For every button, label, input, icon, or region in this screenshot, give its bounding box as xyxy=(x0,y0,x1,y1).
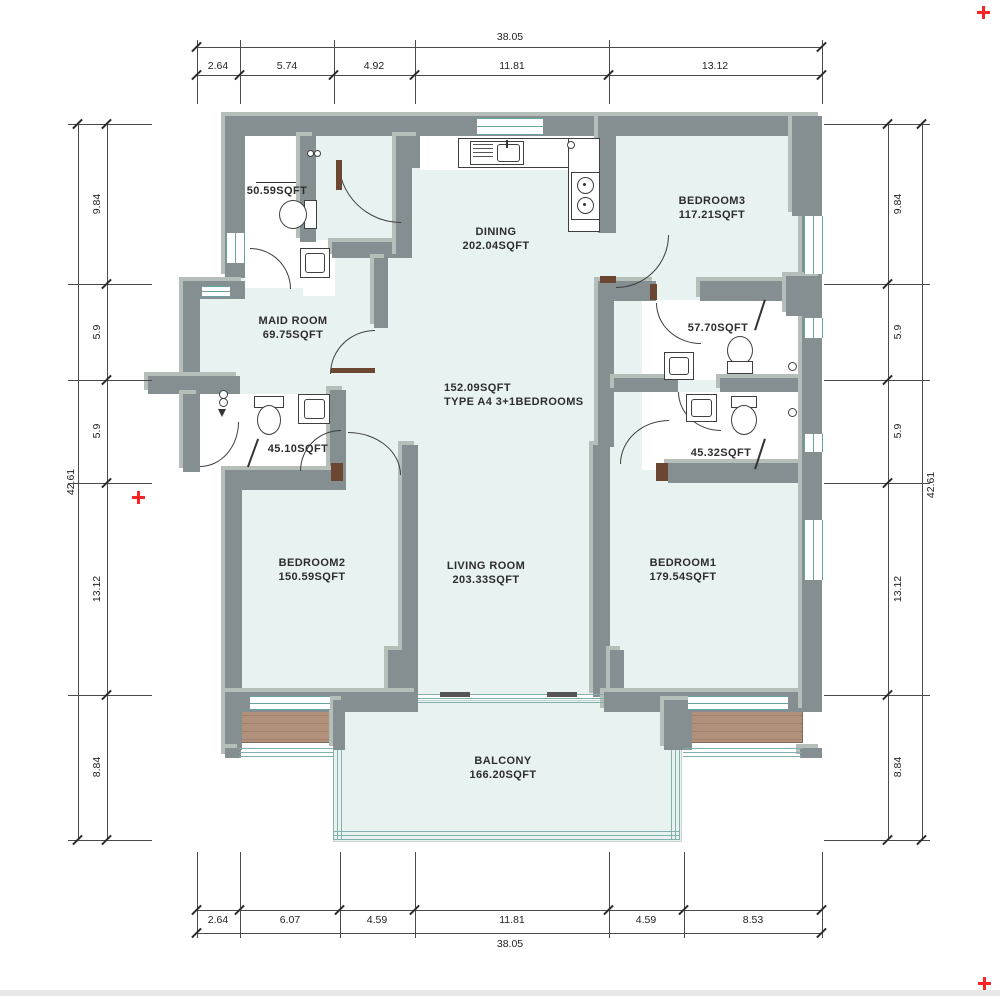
glass-door-tab xyxy=(440,692,470,697)
wall-bedroom2-top xyxy=(225,470,345,490)
dim-label: 4.59 xyxy=(624,914,668,926)
room-area: 150.59SQFT xyxy=(279,570,346,584)
dim-line-left-total xyxy=(78,124,79,840)
maid-wing-window xyxy=(202,286,230,297)
dim-label-bottom-total: 38.05 xyxy=(480,938,540,950)
wall-maid-right xyxy=(374,258,388,328)
dim-line-top-segments xyxy=(197,75,822,76)
wall-bedroom2-living xyxy=(402,445,418,697)
wall-right-step xyxy=(786,276,822,316)
wall-baths-divider-left xyxy=(614,378,678,392)
dim-label: 5.74 xyxy=(265,60,309,72)
room-area: 203.33SQFT xyxy=(447,573,525,587)
dim-label: 13.12 xyxy=(91,565,103,613)
room-label-balcony: BALCONY 166.20SQFT xyxy=(470,754,537,782)
bedroom2-balcony-window xyxy=(250,696,330,710)
extension-line xyxy=(68,380,152,381)
red-plus-marker xyxy=(132,491,145,504)
extension-line xyxy=(68,695,152,696)
red-plus-marker xyxy=(977,6,990,19)
wall-bath-left-outer xyxy=(183,394,200,472)
dim-label: 5.9 xyxy=(892,308,904,356)
room-label-upper-right-bath: 57.70SQFT xyxy=(688,321,748,335)
room-label-left-bath: 45.10SQFT xyxy=(268,442,328,456)
unit-type-label: 152.09SQFT TYPE A4 3+1BEDROOMS xyxy=(444,381,584,409)
bath-sink-basin xyxy=(304,399,325,419)
room-label-bedroom2: BEDROOM2 150.59SQFT xyxy=(279,556,346,584)
bedroom1-door-jamb xyxy=(656,463,668,481)
extension-line xyxy=(68,284,152,285)
dim-line-bottom-total xyxy=(197,933,822,934)
wall-baths-left xyxy=(598,281,614,447)
dim-label-right-total: 42.61 xyxy=(925,455,937,515)
dim-label: 2.64 xyxy=(196,60,240,72)
footer-strip xyxy=(0,990,1000,996)
room-area: 166.20SQFT xyxy=(470,768,537,782)
kitchen-sink-drainboard xyxy=(473,144,493,160)
room-area: 117.21SQFT xyxy=(679,208,746,222)
unit-area: 152.09SQFT xyxy=(444,381,584,395)
room-name: BEDROOM1 xyxy=(650,556,717,570)
dim-label: 4.59 xyxy=(355,914,399,926)
entry-door-jamb xyxy=(336,160,342,190)
dim-line-bottom-segments xyxy=(197,910,822,911)
shower-head-symbol xyxy=(314,150,321,157)
room-label-maid-room: MAID ROOM 69.75SQFT xyxy=(259,314,328,342)
stove-burner-dot xyxy=(583,183,586,186)
room-label-entry-bath: 50.59SQFT xyxy=(247,184,307,198)
deck-sill-right-end xyxy=(800,748,822,758)
maid-door-threshold xyxy=(331,368,375,373)
room-name: BEDROOM2 xyxy=(279,556,346,570)
balcony-railing-right xyxy=(671,750,680,840)
water-point xyxy=(219,398,228,407)
deck-railing-right xyxy=(683,748,802,757)
kitchen-sink-basin xyxy=(497,144,520,162)
extension-line xyxy=(240,852,241,938)
room-label-lower-right-bath: 45.32SQFT xyxy=(691,446,751,460)
extension-line xyxy=(822,852,823,938)
wall-bedroom3-left xyxy=(598,116,616,233)
bath-upper-right-window xyxy=(804,318,823,338)
water-point xyxy=(788,362,797,371)
dim-label: 13.12 xyxy=(693,60,737,72)
room-label-bedroom1: BEDROOM1 179.54SQFT xyxy=(650,556,717,584)
deck-railing-left xyxy=(239,748,333,757)
extension-line xyxy=(684,852,685,938)
bath-sink-basin xyxy=(305,253,325,273)
bedroom3-window xyxy=(804,216,823,274)
wall-living-bedroom1-foot xyxy=(610,650,624,697)
room-label-bedroom3: BEDROOM3 117.21SQFT xyxy=(679,194,746,222)
dim-label: 9.84 xyxy=(892,180,904,228)
kitchen-window xyxy=(477,118,543,135)
room-label-dining: DINING 202.04SQFT xyxy=(463,225,530,253)
room-name: BALCONY xyxy=(470,754,537,768)
bedroom1-side-window xyxy=(804,520,823,580)
shower-head-symbol xyxy=(307,150,314,157)
wall-living-bedroom1 xyxy=(593,445,610,697)
room-area: 179.54SQFT xyxy=(650,570,717,584)
balcony-stub-left xyxy=(333,700,345,750)
room-area: 69.75SQFT xyxy=(259,328,328,342)
bedroom1-balcony-window xyxy=(688,696,788,710)
bedroom3-door-jamb xyxy=(600,276,616,283)
dim-label: 5.9 xyxy=(91,308,103,356)
bath-sink-basin xyxy=(669,357,689,375)
wall-right-corner-top xyxy=(792,116,822,216)
extension-line xyxy=(609,852,610,938)
room-name: BEDROOM3 xyxy=(679,194,746,208)
bath-lower-right-window xyxy=(804,434,823,452)
extension-line xyxy=(340,852,341,938)
dim-label: 9.84 xyxy=(91,180,103,228)
extension-line xyxy=(824,840,930,841)
glass-door-tab xyxy=(547,692,577,697)
toilet-bowl xyxy=(279,200,307,229)
dim-label: 8.53 xyxy=(731,914,775,926)
extension-line xyxy=(824,380,930,381)
room-label-living-room: LIVING ROOM 203.33SQFT xyxy=(447,559,525,587)
dim-label-left-total: 42.61 xyxy=(65,452,77,512)
floor-plan-canvas: 50.59SQFT DINING 202.04SQFT BEDROOM3 117… xyxy=(0,0,1000,996)
towel-bar xyxy=(256,182,296,183)
extension-line xyxy=(68,840,152,841)
dim-label: 5.9 xyxy=(892,407,904,455)
dim-label: 13.12 xyxy=(892,565,904,613)
room-name: MAID ROOM xyxy=(259,314,328,328)
extension-line xyxy=(824,284,930,285)
room-name: DINING xyxy=(463,225,530,239)
balcony-railing-left xyxy=(333,750,342,840)
gas-point xyxy=(567,141,575,149)
kitchen-faucet xyxy=(506,140,508,148)
toilet-bowl xyxy=(257,405,281,435)
dim-label: 6.07 xyxy=(268,914,312,926)
room-area: 202.04SQFT xyxy=(463,239,530,253)
dim-label: 8.84 xyxy=(892,743,904,791)
wall-bedroom2-living-foot xyxy=(388,650,402,697)
bedroom2-door-jamb xyxy=(331,463,343,481)
dim-label-top-total: 38.05 xyxy=(480,31,540,43)
bath-sink-basin xyxy=(691,399,712,417)
unit-type: TYPE A4 3+1BEDROOMS xyxy=(444,395,584,409)
toilet-bowl xyxy=(731,405,757,435)
extension-line xyxy=(824,695,930,696)
extension-line xyxy=(68,124,152,125)
wall-bedroom1-top xyxy=(668,463,802,483)
extension-line xyxy=(824,483,930,484)
room-name: LIVING ROOM xyxy=(447,559,525,573)
water-point xyxy=(788,408,797,417)
extension-line xyxy=(68,483,152,484)
dim-line-right-total xyxy=(922,124,923,840)
bath-upper-right-door-jamb xyxy=(650,284,657,300)
dim-label: 5.9 xyxy=(91,407,103,455)
toilet-tank xyxy=(727,361,753,374)
dim-label: 11.81 xyxy=(490,60,534,72)
extension-line xyxy=(824,124,930,125)
dim-line-top-total xyxy=(197,47,822,48)
red-plus-marker xyxy=(978,977,991,990)
dim-label: 2.64 xyxy=(196,914,240,926)
dim-label: 11.81 xyxy=(490,914,534,926)
dim-label: 4.92 xyxy=(352,60,396,72)
extension-line xyxy=(415,852,416,938)
entry-bath-window xyxy=(226,233,245,263)
stove-burner-dot xyxy=(583,203,586,206)
balcony-railing-bottom xyxy=(333,831,680,840)
wall-baths-divider-right xyxy=(720,378,802,392)
dim-label: 8.84 xyxy=(91,743,103,791)
